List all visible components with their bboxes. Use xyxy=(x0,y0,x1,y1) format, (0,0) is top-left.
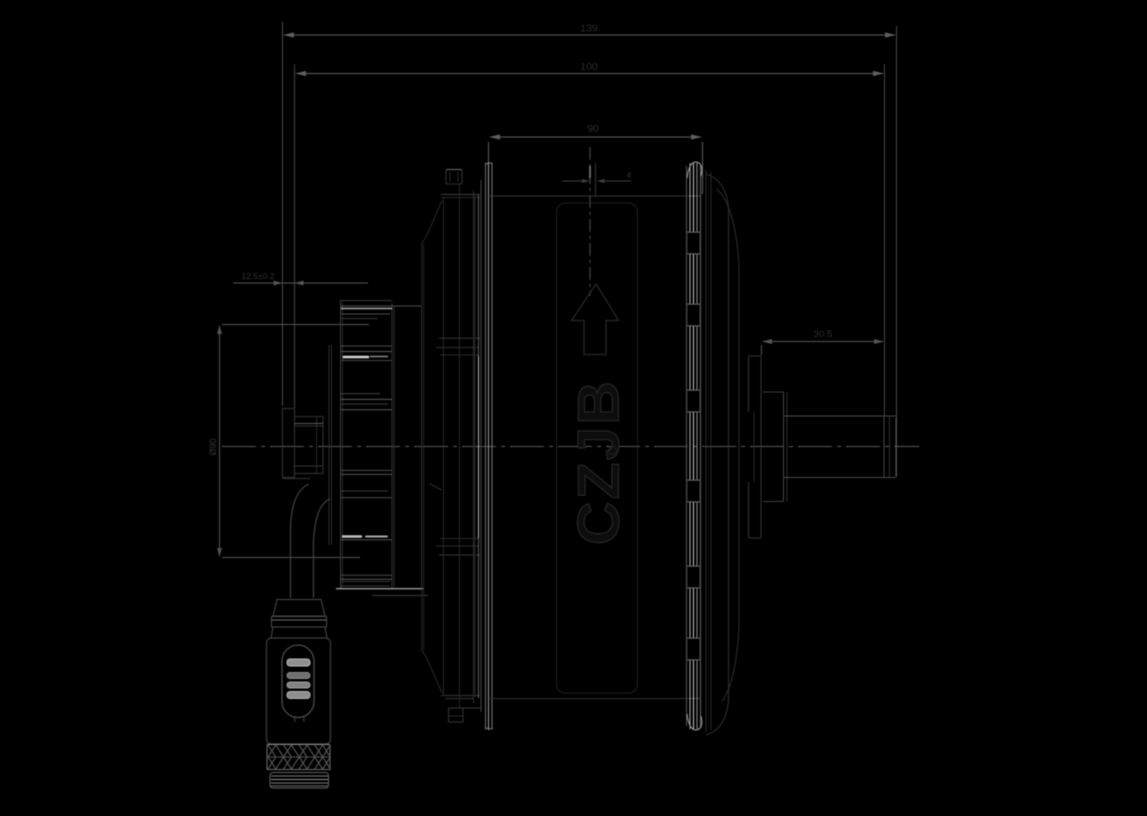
svg-text:90: 90 xyxy=(587,124,599,135)
svg-text:30.5: 30.5 xyxy=(814,329,833,340)
svg-text:CZJB: CZJB xyxy=(567,379,632,545)
svg-text:139: 139 xyxy=(580,23,598,35)
svg-text:12.5±0.2: 12.5±0.2 xyxy=(241,271,274,281)
svg-text:4: 4 xyxy=(627,170,632,180)
svg-text:Ø90: Ø90 xyxy=(208,438,218,455)
svg-text:100: 100 xyxy=(580,61,598,73)
